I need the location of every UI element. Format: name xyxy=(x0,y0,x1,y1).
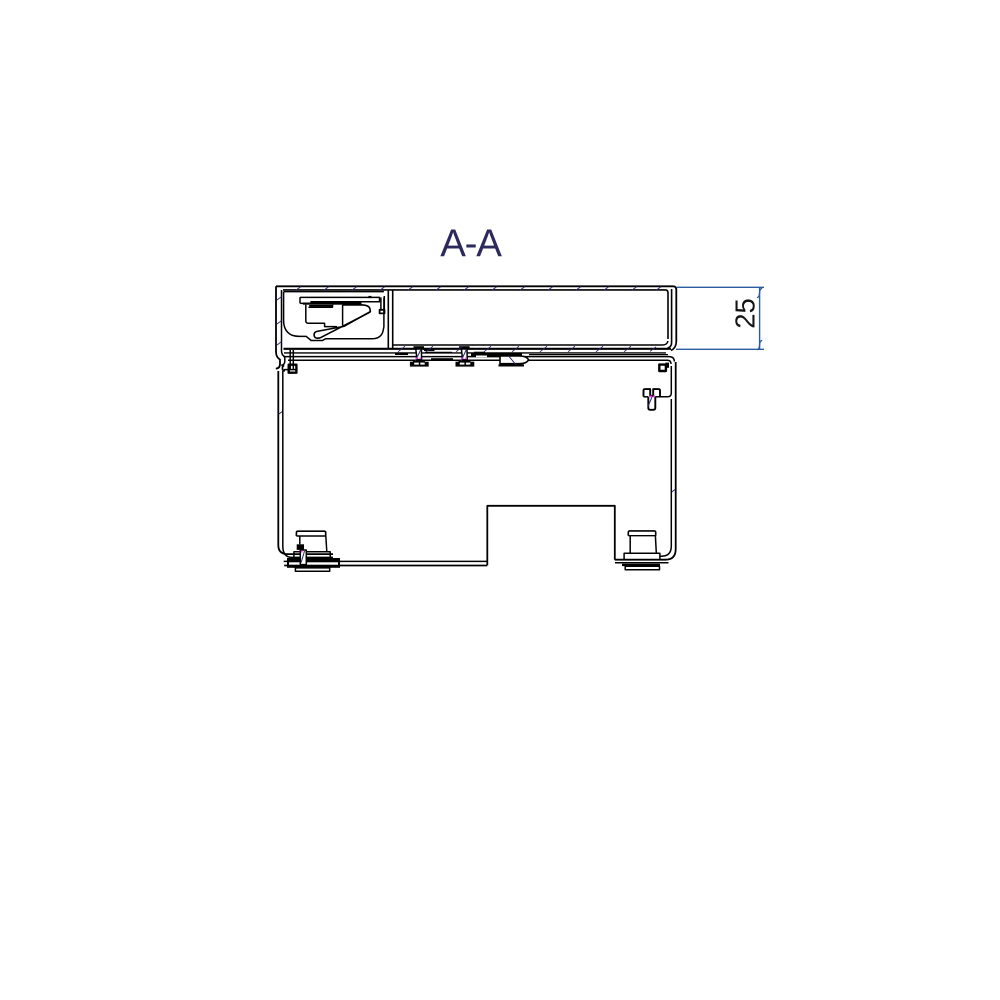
svg-text:A-A: A-A xyxy=(440,223,502,266)
svg-text:25: 25 xyxy=(729,298,760,329)
